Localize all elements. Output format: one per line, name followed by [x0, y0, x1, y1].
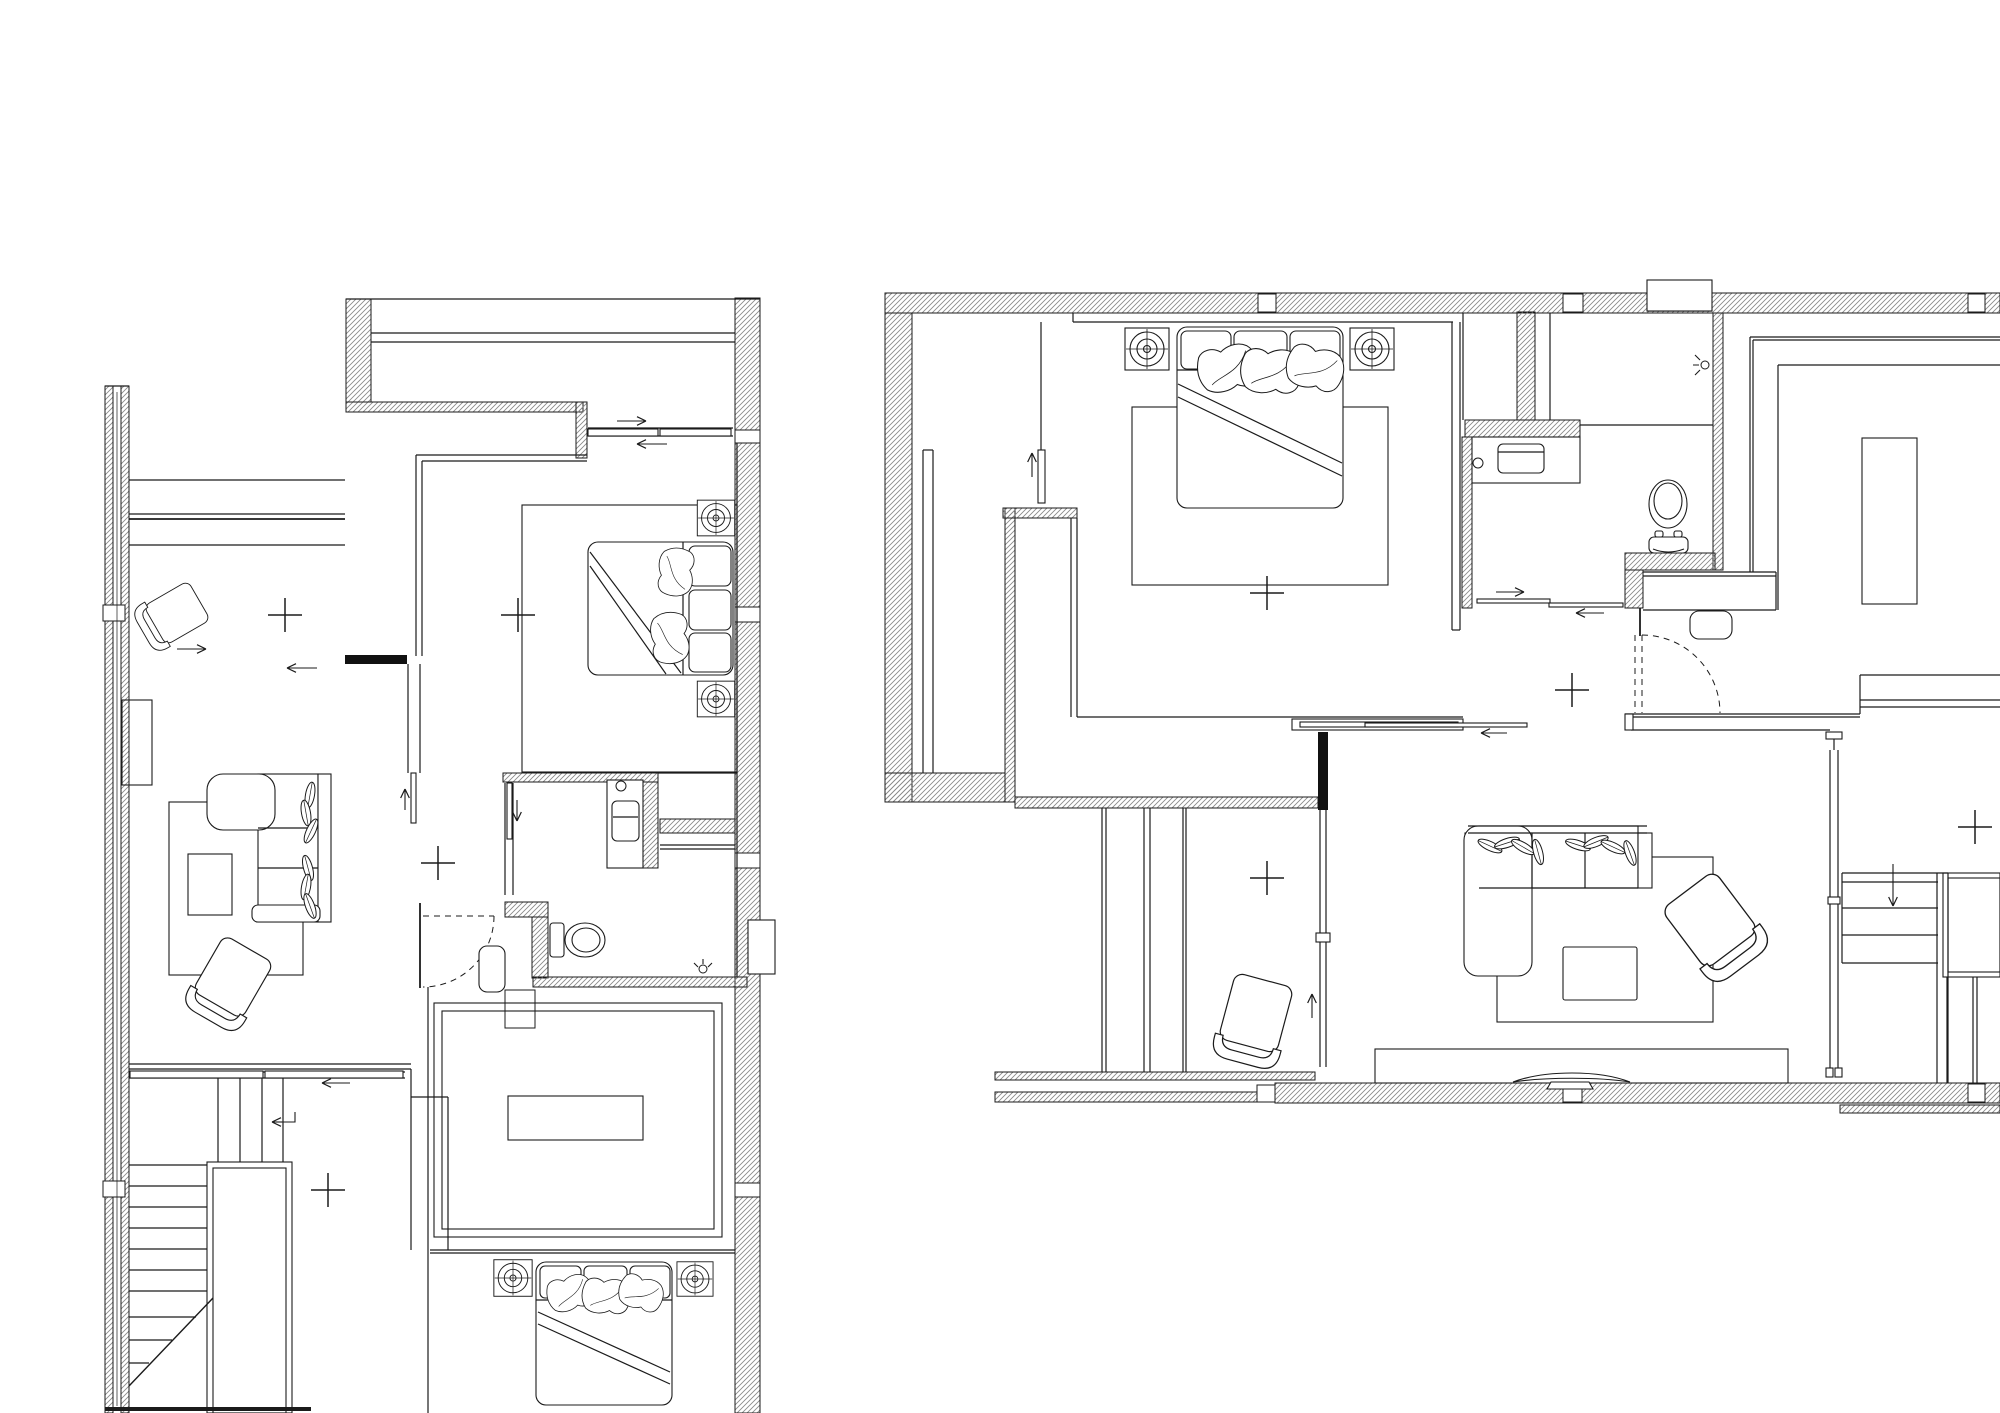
paper-background: [0, 0, 2000, 1413]
floor-plan-drawing: [0, 0, 2000, 1413]
floor-plan-page: [0, 0, 2000, 1413]
